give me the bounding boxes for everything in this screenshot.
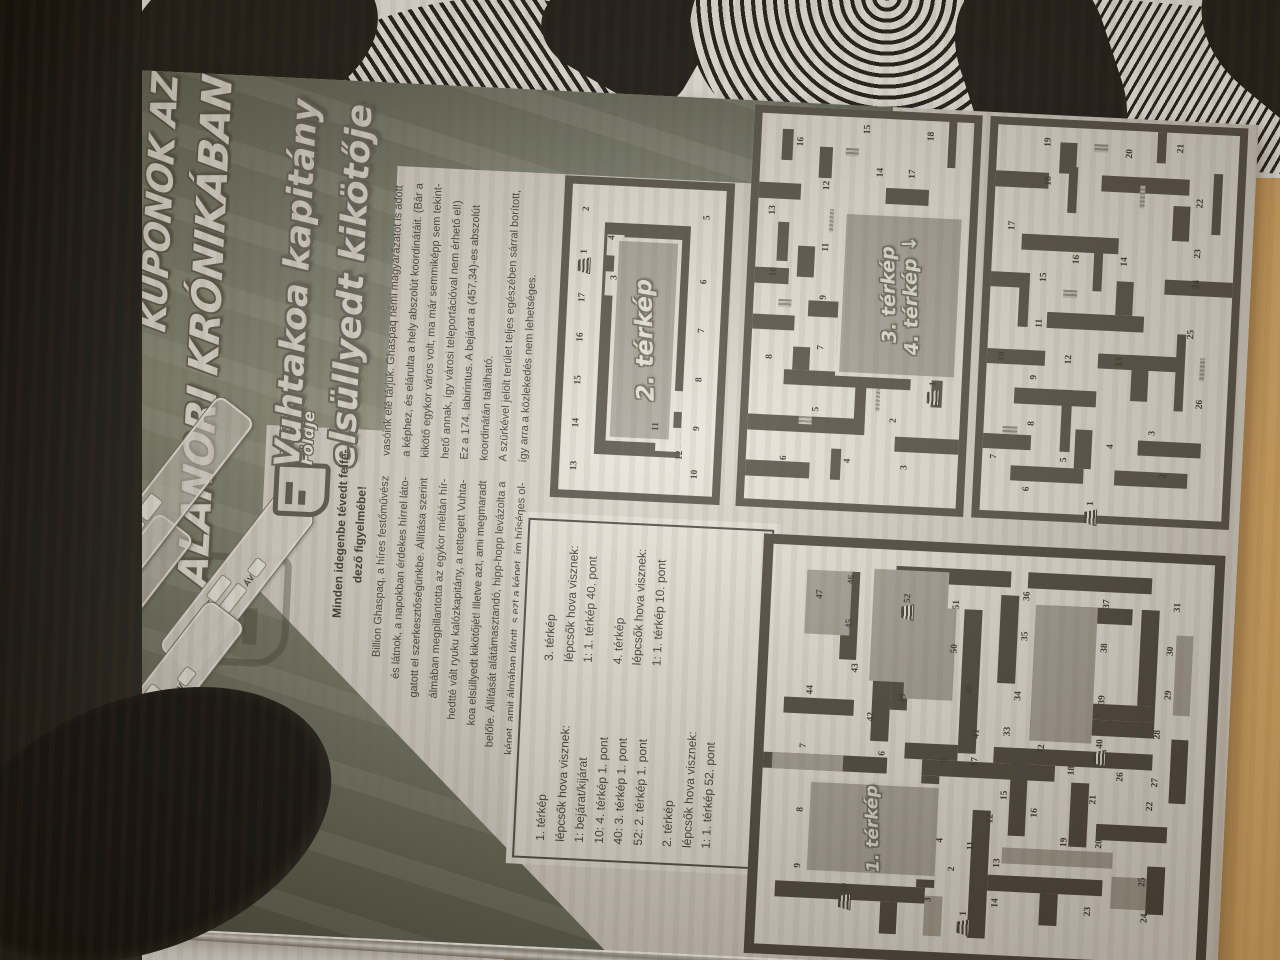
map-point-number: 4 (607, 235, 617, 240)
door-mark (875, 389, 880, 412)
map-point-number: 4 (935, 838, 945, 843)
maze-wall (759, 182, 802, 199)
maze-wall (1130, 367, 1149, 403)
map-point-number: 1 (929, 381, 939, 386)
map-point-number: 17 (1008, 221, 1018, 231)
maze-wall (1021, 234, 1118, 254)
map-point-number: 7 (798, 743, 808, 748)
maze-map-1: 1. térkép1234567891011121314151617181920… (744, 533, 1226, 960)
map-point-number: 18 (1067, 766, 1077, 776)
map-point-number: 46 (846, 575, 856, 585)
maze-wall (819, 147, 833, 178)
map-point-number: 17 (907, 169, 917, 179)
maze-wall (1172, 206, 1191, 242)
map-point-number: 24 (1139, 913, 1149, 923)
map-point-number: 16 (1071, 255, 1081, 265)
map-point-number: 15 (863, 125, 873, 135)
maze-map-4: 1234567891011121314151617181920212223242… (971, 116, 1248, 530)
map-point-number: 3 (610, 275, 620, 280)
map-label-box: 2. térkép (610, 241, 678, 439)
map-point-number: 12 (675, 450, 685, 460)
door-mark (1140, 185, 1146, 208)
legend-column-1: 1. térképlépcsők hova visznek:1: bejárat… (531, 724, 722, 850)
map-point-number: 13 (1115, 357, 1125, 367)
map-point-number: 7 (989, 454, 999, 459)
maze-wall (1115, 281, 1134, 317)
map-point-number: 15 (574, 375, 584, 385)
map-point-number: 3 (899, 465, 909, 470)
map-point-number: 15 (999, 790, 1009, 800)
maze-wall (905, 742, 959, 761)
map-point-number: 22 (1195, 199, 1205, 209)
maze-wall (1010, 465, 1083, 484)
map-point-number: 17 (578, 292, 588, 302)
map-point-number: 37 (1102, 599, 1112, 609)
map-point-number: 8 (1027, 421, 1037, 426)
map-point-number: 15 (1039, 272, 1049, 282)
map-point-number: 39 (1097, 695, 1107, 705)
map-point-number: 7 (696, 328, 706, 333)
map-point-number: 16 (1030, 808, 1040, 818)
map-point-number: 44 (805, 685, 815, 695)
map-point-number: 18 (1044, 176, 1054, 186)
maze-wall (947, 122, 958, 169)
map-point-number: 19 (1059, 837, 1069, 847)
map-point-number: 8 (765, 354, 775, 359)
map-point-number: 5 (702, 215, 712, 220)
door-mark (779, 299, 792, 307)
mud-area (1001, 847, 1112, 868)
maze-wall (1059, 143, 1077, 175)
maze-wall (1168, 739, 1189, 804)
map-point-number: 36 (1022, 591, 1032, 601)
map-point-number: 12 (1064, 355, 1074, 365)
map-point-number: 29 (1164, 690, 1174, 700)
map-point-number: 1 (580, 249, 590, 254)
map-point-number: 22 (1145, 802, 1155, 812)
map-point-number: 52 (903, 593, 913, 603)
map-point-number: 38 (1100, 643, 1110, 653)
map-point-number: 26 (1195, 400, 1205, 410)
map-point-number: 11 (1034, 319, 1044, 328)
photo-scene: KUPONOK AZ ALANORI KRÓNIKÁBAN 1. Karakte… (0, 0, 1280, 960)
map-point-number: 27 (1151, 778, 1161, 788)
map-point-number: 5 (811, 406, 821, 411)
map-point-number: 6 (699, 279, 709, 284)
map-point-number: 14 (875, 168, 885, 178)
map-point-number: 2 (582, 206, 592, 211)
maze-wall (878, 901, 897, 934)
maze-wall (783, 696, 854, 715)
map-point-number: 2 (947, 866, 957, 871)
map-point-number: 32 (1037, 744, 1047, 754)
map-point-number: 47 (815, 589, 825, 599)
stairs-icon (956, 919, 970, 937)
map-point-number: 3 (1148, 431, 1158, 436)
map-label-box: 3. térkép4. térkép ↓ (839, 214, 961, 378)
map-point-number: 16 (796, 137, 806, 147)
maze-wall (1114, 470, 1187, 489)
map-point-number: 10 (689, 469, 699, 479)
map-label-next-arrow: 4. térkép ↓ (899, 236, 923, 356)
map-point-number: 43 (851, 663, 861, 673)
maze-wall (1014, 388, 1097, 407)
map-point-number: 13 (569, 461, 579, 471)
map-point-number: 40 (1095, 739, 1105, 749)
map-point-number: 42 (866, 712, 876, 722)
map-point-number: 23 (1193, 249, 1203, 259)
map-point-number: 20 (1094, 839, 1104, 849)
map-point-number: 9 (819, 295, 829, 300)
door-mark (1199, 358, 1205, 381)
maze-wall (886, 188, 929, 205)
map-point-number: 10 (840, 883, 850, 893)
stairs-icon (926, 389, 940, 407)
map-point-number: 33 (1003, 726, 1013, 736)
mud-area (903, 606, 956, 700)
map-point-number: 18 (926, 131, 936, 141)
map-point-number: 20 (1125, 149, 1135, 159)
map-point-number: 6 (779, 455, 789, 460)
door-mark (1063, 290, 1078, 298)
maze-wall (1145, 866, 1165, 915)
maze-wall (745, 460, 809, 479)
map-point-number: 8 (694, 377, 704, 382)
door-mark (798, 416, 811, 424)
map-point-number: 9 (1029, 375, 1039, 380)
map-point-number: 5 (939, 758, 949, 763)
map-point-number: 7 (816, 345, 826, 350)
map-point-number: 25 (1137, 877, 1147, 887)
stairs-icon (577, 257, 591, 275)
map-point-number: 1 (958, 911, 968, 916)
maze-wall (1038, 893, 1057, 926)
maze-wall (830, 448, 842, 479)
map-point-number: 24 (1191, 280, 1201, 290)
map-point-number: 8 (795, 807, 805, 812)
door-mark (1003, 426, 1018, 434)
door-mark (829, 209, 834, 232)
map-point-number: 12 (822, 180, 832, 190)
map-point-number: 5 (1059, 457, 1069, 462)
maze-wall (793, 346, 811, 370)
maze-wall (983, 433, 1032, 451)
maze-wall (1028, 572, 1152, 594)
map-point-number: 28 (1153, 730, 1163, 740)
maze-wall (997, 595, 1019, 684)
map-point-number: 11 (966, 841, 976, 850)
body-text-column-1: Billion Ghaspaq, a híres festőművészés l… (358, 475, 532, 852)
maze-wall (995, 171, 1049, 189)
map-point-number: 34 (1013, 691, 1023, 701)
maze-wall (1069, 783, 1090, 848)
map-point-number: 3 (924, 897, 934, 902)
map-point-number: 13 (768, 205, 778, 215)
maze-wall (777, 222, 789, 261)
map-point-number: 17 (970, 757, 980, 767)
map-label: 1. térkép (862, 785, 884, 872)
maze-wall (895, 436, 959, 455)
maze-wall (797, 246, 815, 278)
maze-wall (1007, 756, 1029, 837)
map-label: 2. térkép (629, 279, 660, 402)
map-point-number: 51 (951, 600, 961, 610)
map-point-number: 4 (1106, 444, 1116, 449)
map-point-number: 11 (821, 243, 831, 252)
map-point-number: 23 (1082, 907, 1092, 917)
maze-wall (1156, 132, 1167, 163)
map-point-number: 25 (1186, 330, 1196, 340)
mud-area (1030, 605, 1098, 744)
map-point-number: 6 (878, 751, 888, 756)
maze-map-2: 2. térkép1314151617123411121098765 (550, 175, 736, 505)
map-point-number: 50 (949, 644, 959, 654)
maze-wall (990, 271, 1029, 288)
map-point-number: 49 (898, 693, 908, 703)
maze-wall (782, 129, 794, 160)
map-point-number: 45 (844, 619, 854, 629)
map-point-number: 13 (992, 858, 1002, 868)
maze-wall (1074, 430, 1093, 469)
maze-wall (1211, 174, 1224, 236)
legend-column-2: 3. térképlépcsők hova visznek:1: 1. térk… (540, 544, 673, 667)
map-point-number: 2 (889, 418, 899, 423)
map-point-number: 16 (576, 332, 586, 342)
map-point-number: 6 (1021, 486, 1031, 491)
map-point-number: 2 (1158, 474, 1168, 479)
maze-wall (752, 313, 795, 330)
legend-box: 1. térképlépcsők hova visznek:1: bejárat… (512, 518, 774, 870)
map-point-number: 1 (1086, 501, 1096, 506)
maze-wall (1137, 610, 1159, 707)
map-point-number: 10 (996, 351, 1006, 361)
map-point-number: 12 (985, 814, 995, 824)
map-point-number: 19 (1043, 137, 1053, 147)
maze-map-3: 3. térkép4. térkép ↓13111098756161512181… (735, 104, 982, 517)
map-point-number: 14 (1120, 257, 1130, 267)
map-point-number: 21 (1176, 144, 1186, 154)
map-label-box: 1. térkép (806, 782, 938, 876)
map-point-number: 9 (793, 863, 803, 868)
map-point-number: 4 (842, 458, 852, 463)
map-point-number: 41 (972, 729, 982, 739)
door-mark (1094, 144, 1109, 152)
map-point-number: 11 (651, 422, 661, 431)
map-point-number: 21 (1088, 795, 1098, 805)
map-point-number: 10 (769, 267, 779, 277)
body-text-column-2: vasóink elé tárjuk. Ghaspaq némi magyará… (377, 84, 551, 463)
map-label: 3. térkép (877, 246, 901, 343)
mud-area (771, 752, 842, 771)
door-mark (845, 148, 858, 156)
map-point-number: 26 (1115, 772, 1125, 782)
map-point-number: 35 (1021, 631, 1031, 641)
map-point-number: 48 (965, 685, 975, 695)
map-point-number: 30 (1166, 646, 1176, 656)
stairs-icon (1084, 509, 1098, 527)
maze-wall (1095, 824, 1166, 843)
map-point-number: 14 (990, 898, 1000, 908)
map-point-number: 9 (692, 426, 702, 431)
map-point-number: 14 (571, 418, 581, 428)
map-point-number: 31 (1172, 603, 1182, 613)
maze-wall (1102, 176, 1190, 196)
maze-wall (1137, 440, 1201, 458)
